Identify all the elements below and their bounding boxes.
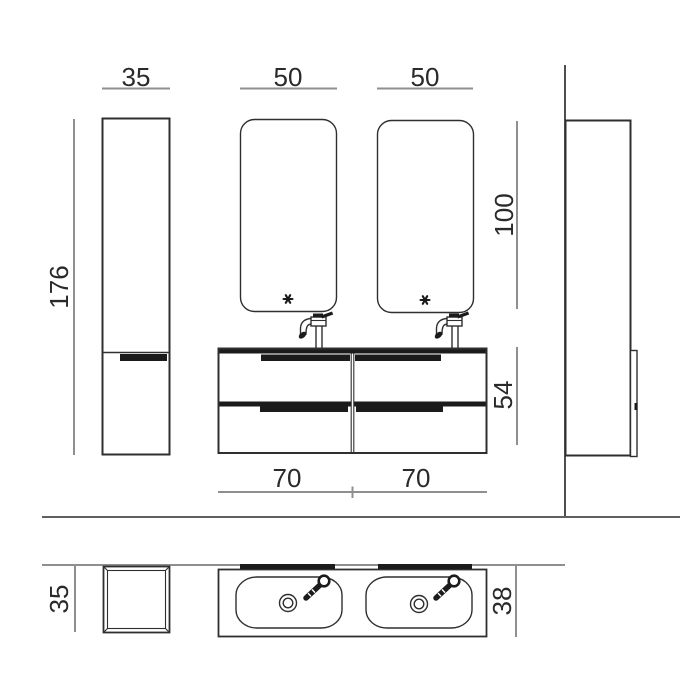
dim-vanity-height: 54 xyxy=(488,347,518,445)
dim-right-mirror-width-label: 50 xyxy=(411,62,440,92)
dim-vanity-height-label: 54 xyxy=(488,381,518,410)
drawer-handle-bottom-left xyxy=(260,402,348,413)
dim-mirror-height: 100 xyxy=(489,121,519,309)
column-plan xyxy=(104,567,170,633)
technical-drawing: 35 50 50 176 100 54 xyxy=(0,0,700,700)
drawer-handle-top-left xyxy=(261,355,350,362)
countertop-edge xyxy=(220,350,486,354)
mirror-left xyxy=(241,120,337,312)
dim-right-module-label: 70 xyxy=(402,463,431,493)
tall-column-side xyxy=(565,65,638,517)
dim-mirror-height-label: 100 xyxy=(489,193,519,236)
column-side-handle xyxy=(635,403,638,410)
mirror-left-plan-strip xyxy=(240,564,335,569)
countertop-plan xyxy=(219,564,487,637)
dim-basin-modules: 70 70 xyxy=(218,463,487,498)
dim-right-mirror-width: 50 xyxy=(377,62,473,92)
dim-column-width-label: 35 xyxy=(122,62,151,92)
dim-column-height: 176 xyxy=(44,119,74,455)
dim-column-width: 35 xyxy=(102,62,170,92)
faucet-right-front xyxy=(433,312,469,351)
vanity-body xyxy=(219,349,487,454)
dim-column-depth-label: 35 xyxy=(44,585,74,614)
column-body xyxy=(103,119,170,455)
mirror-right xyxy=(378,121,474,313)
drawer-handle-top-right xyxy=(355,355,441,362)
dim-left-module-label: 70 xyxy=(273,463,302,493)
dim-countertop-depth: 38 xyxy=(487,565,517,637)
column-handle-recess xyxy=(120,354,167,361)
faucet-left-front xyxy=(297,312,333,351)
dim-column-depth: 35 xyxy=(44,565,75,632)
dim-column-height-label: 176 xyxy=(44,265,74,308)
dim-countertop-depth-label: 38 xyxy=(487,587,517,616)
dim-left-mirror-width: 50 xyxy=(240,62,337,92)
drawing-canvas: 35 50 50 176 100 54 xyxy=(0,0,700,700)
column-side-body xyxy=(566,121,631,456)
dim-left-mirror-width-label: 50 xyxy=(274,62,303,92)
mirror-right-plan-strip xyxy=(378,564,472,569)
column-plan-outer xyxy=(104,567,170,633)
tall-column-front xyxy=(103,119,170,455)
drawer-handle-bottom-right xyxy=(356,402,443,413)
vanity-front xyxy=(219,349,487,454)
